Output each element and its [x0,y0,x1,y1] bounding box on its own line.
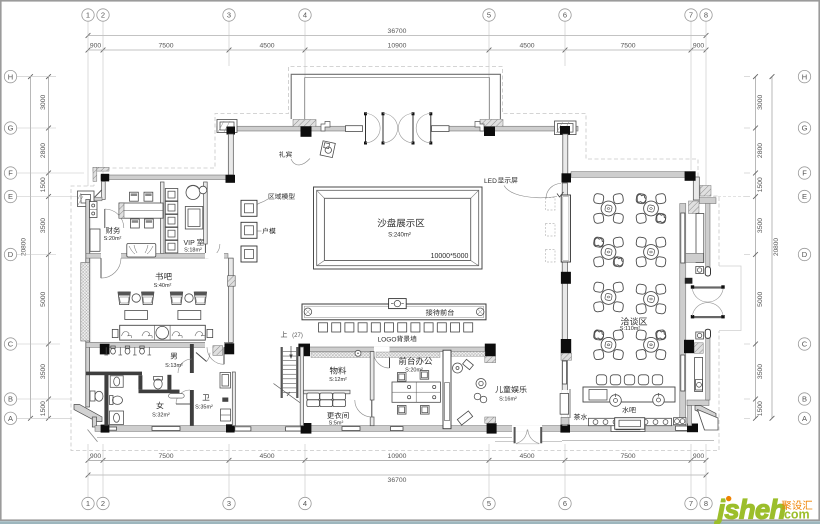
svg-text:900: 900 [693,42,705,49]
svg-text:36700: 36700 [388,477,407,484]
svg-text:S:16m²: S:16m² [499,397,517,403]
svg-text:6: 6 [563,499,567,508]
svg-text:C: C [8,340,14,349]
svg-text:3500: 3500 [40,364,47,379]
svg-text:S:32m²: S:32m² [152,413,170,419]
svg-text:C: C [802,340,808,349]
svg-text:20800: 20800 [773,238,780,256]
svg-text:4: 4 [303,499,307,508]
svg-text:7500: 7500 [158,42,173,49]
svg-text:1500: 1500 [757,177,764,192]
svg-text:36700: 36700 [388,28,407,35]
svg-text:S:18m²: S:18m² [184,248,202,254]
svg-text:E: E [802,192,807,201]
svg-text:F: F [8,169,13,178]
svg-text:S:40m²: S:40m² [154,283,172,289]
svg-text:20800: 20800 [21,238,28,256]
svg-text:F: F [802,169,807,178]
svg-text:LOGO: LOGO [378,336,397,343]
svg-text:LED: LED [484,178,497,185]
svg-text:1: 1 [86,499,90,508]
svg-text:7: 7 [689,499,693,508]
svg-text:G: G [802,124,808,133]
svg-text:7500: 7500 [158,453,173,460]
svg-text:S:5m²: S:5m² [329,420,344,426]
svg-text:3000: 3000 [757,95,764,110]
svg-text:B: B [8,395,13,404]
svg-text:4500: 4500 [519,453,534,460]
svg-text:B: B [802,395,807,404]
svg-text:3500: 3500 [40,218,47,233]
svg-text:3500: 3500 [757,218,764,233]
svg-text:H: H [802,72,807,81]
svg-text:1500: 1500 [757,401,764,416]
svg-text:4500: 4500 [259,42,274,49]
svg-text:10000*5000: 10000*5000 [431,253,469,260]
svg-text:4: 4 [303,11,307,20]
svg-text:S:20m²: S:20m² [104,236,122,242]
svg-text:S:35m²: S:35m² [195,405,213,411]
svg-text:8: 8 [704,11,708,20]
svg-text:900: 900 [693,453,705,460]
svg-text:VIP: VIP [184,240,196,247]
svg-text:G: G [8,124,14,133]
svg-text:jsheh: jsheh [715,495,786,524]
svg-text:S:240m²: S:240m² [388,233,411,239]
svg-text:5000: 5000 [757,291,764,306]
svg-text:2: 2 [101,499,105,508]
svg-text:900: 900 [90,42,102,49]
svg-text:1500: 1500 [40,177,47,192]
svg-text:(27): (27) [292,333,303,339]
svg-text:D: D [802,250,808,259]
svg-text:H: H [8,72,13,81]
svg-text:1: 1 [86,11,90,20]
svg-text:A: A [802,414,807,423]
svg-text:7500: 7500 [620,453,635,460]
svg-text:2800: 2800 [757,143,764,158]
svg-text:8: 8 [704,499,708,508]
svg-text:5000: 5000 [40,291,47,306]
svg-text:S:12m²: S:12m² [329,377,347,383]
svg-text:A: A [8,414,13,423]
svg-text:3: 3 [227,11,231,20]
svg-text:S:110m²: S:110m² [620,326,641,332]
svg-text:4500: 4500 [259,453,274,460]
svg-text:3500: 3500 [757,364,764,379]
svg-text:1500: 1500 [40,401,47,416]
svg-text:7500: 7500 [620,42,635,49]
svg-text:5: 5 [487,499,491,508]
svg-text:4500: 4500 [519,42,534,49]
svg-text:3000: 3000 [40,95,47,110]
svg-text:5: 5 [487,11,491,20]
svg-text:900: 900 [90,453,102,460]
svg-text:10900: 10900 [388,42,407,49]
svg-text:2800: 2800 [40,143,47,158]
svg-text:3: 3 [227,499,231,508]
svg-text:S:13m²: S:13m² [165,363,183,369]
svg-text:E: E [8,192,13,201]
svg-text:D: D [8,250,14,259]
svg-text:6: 6 [563,11,567,20]
svg-text:10900: 10900 [388,453,407,460]
svg-text:7: 7 [689,11,693,20]
svg-text:.com: .com [781,508,810,522]
svg-text:2: 2 [101,11,105,20]
